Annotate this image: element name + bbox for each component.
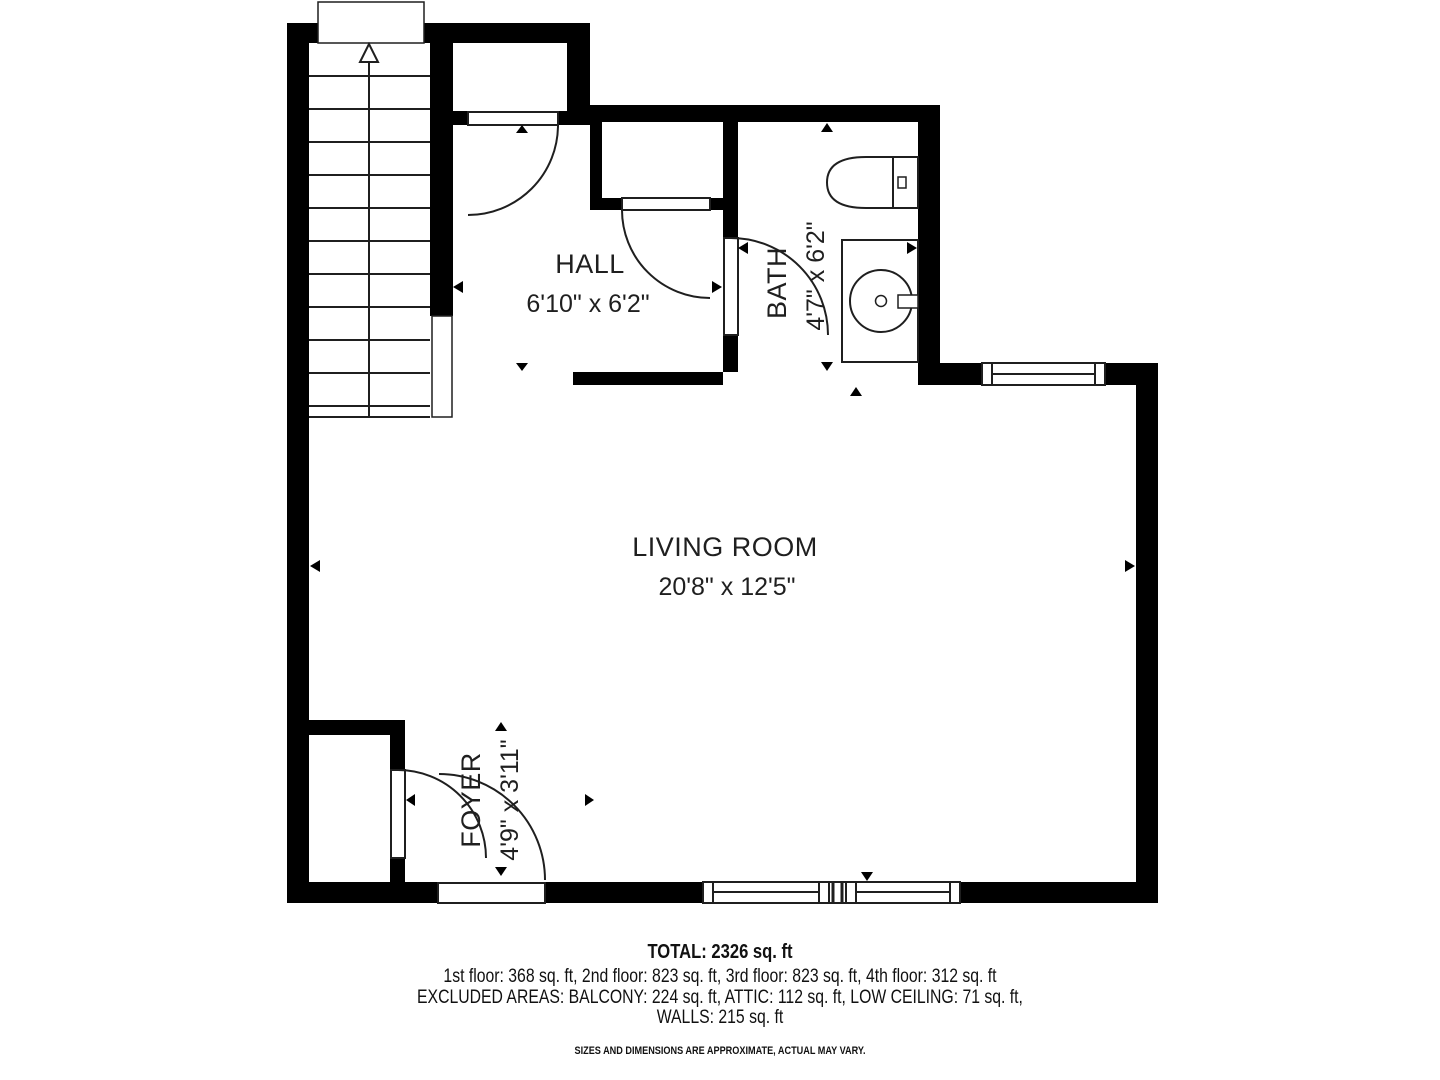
- hall-arrow-down-icon: [516, 363, 528, 371]
- foyer-arrow-down-icon: [495, 867, 507, 876]
- wall-upper-right-a: [938, 363, 982, 385]
- foyer-dims: 4'9" x 3'11": [496, 739, 524, 860]
- wall-bottom-b: [545, 882, 703, 903]
- wall-bath-left-lower: [723, 335, 738, 372]
- hall-dims: 6'10" x 6'2": [526, 290, 649, 318]
- sink-vanity-icon: [842, 240, 918, 362]
- window-mullion: [829, 882, 846, 903]
- wall-foyer-closet-b: [390, 858, 405, 882]
- bath-dims: 4'7" x 6'2": [802, 221, 830, 330]
- living-arrow-down-icon: [861, 872, 873, 881]
- floor-areas-text: 1st floor: 368 sq. ft, 2nd floor: 823 sq…: [122, 967, 1317, 988]
- wall-right: [1136, 363, 1158, 903]
- living-arrow-right-icon: [1125, 560, 1135, 572]
- wall-closet2-bottom-a: [590, 198, 622, 210]
- hall-arrow-right-icon: [712, 281, 722, 293]
- wall-closet2-left: [590, 122, 602, 210]
- bath-door-leaf: [724, 238, 738, 335]
- window-top: [982, 363, 1105, 385]
- toilet-flush-button: [898, 177, 906, 188]
- disclaimer-text: SIZES AND DIMENSIONS ARE APPROXIMATE, AC…: [122, 1045, 1317, 1058]
- wall-closet1-bottom-b: [558, 111, 590, 125]
- sink-faucet: [898, 295, 918, 308]
- foyer-label: FOYER: [456, 752, 486, 848]
- bath-label: BATH: [762, 247, 792, 319]
- window-bottom-right: [846, 882, 960, 903]
- wall-bottom-a: [287, 882, 438, 903]
- area-summary: TOTAL: 2326 sq. ft 1st floor: 368 sq. ft…: [0, 941, 1440, 1058]
- windows: [703, 363, 1105, 903]
- hall-closet-door-leaf: [622, 198, 710, 210]
- foyer-arrow-left-icon: [406, 794, 415, 806]
- hall-arrow-left-icon: [453, 281, 463, 293]
- walls-area-text: WALLS: 215 sq. ft: [122, 1008, 1317, 1029]
- wall-hall-bottom: [573, 372, 723, 385]
- hall-label: HALL: [555, 249, 625, 279]
- living-room-dims: 20'8" x 12'5": [658, 573, 795, 601]
- entry-door-leaf: [438, 883, 545, 903]
- wall-bath-right: [918, 105, 940, 385]
- wall-bottom-c: [960, 882, 1158, 903]
- wall-bath-left-upper: [723, 122, 738, 238]
- sink-drain: [876, 296, 887, 307]
- hall-closet-door-arc: [622, 210, 710, 298]
- wall-foyer-top: [309, 720, 405, 735]
- total-area-text: TOTAL: 2326 sq. ft: [122, 941, 1317, 963]
- closet1-door-arc: [468, 125, 558, 215]
- stair-upper-landing: [318, 2, 424, 43]
- wall-left: [287, 23, 309, 903]
- wall-closet1-bottom-a: [430, 111, 468, 125]
- closet1-door-leaf: [468, 112, 558, 125]
- window-bottom-left: [703, 882, 829, 903]
- hall-arrow-up-icon: [516, 125, 528, 133]
- wall-stair-right: [430, 23, 453, 316]
- wall-top-c: [590, 105, 940, 122]
- walls: [287, 23, 1158, 903]
- toilet-icon: [827, 157, 918, 208]
- bath-arrow-down-icon: [821, 362, 833, 371]
- bath-arrow-up-icon: [821, 123, 833, 132]
- living-arrow-up-icon: [850, 387, 862, 396]
- floorplan-page: { "rooms": { "hall": {"name": "HALL", "d…: [0, 0, 1440, 1080]
- foyer-arrow-up-icon: [495, 722, 507, 731]
- living-room-label: LIVING ROOM: [632, 532, 818, 562]
- foyer-arrow-right-icon: [585, 794, 594, 806]
- floorplan-drawing: HALL 6'10" x 6'2" BATH 4'7" x 6'2" LIVIN…: [0, 0, 1440, 910]
- stair-up-arrow-icon: [360, 44, 378, 62]
- foyer-closet-door-leaf: [391, 770, 405, 858]
- room-labels: HALL 6'10" x 6'2" BATH 4'7" x 6'2" LIVIN…: [456, 221, 830, 860]
- bath-arrow-left-icon: [738, 242, 748, 254]
- wall-foyer-closet-a: [390, 735, 405, 770]
- wall-top-a: [287, 23, 318, 43]
- living-arrow-left-icon: [310, 560, 320, 572]
- stair-railing: [432, 316, 452, 417]
- excluded-areas-text: EXCLUDED AREAS: BALCONY: 224 sq. ft, ATT…: [122, 988, 1317, 1009]
- wall-step: [567, 43, 590, 122]
- toilet-bowl: [827, 157, 893, 208]
- bath-fixtures: [827, 157, 918, 362]
